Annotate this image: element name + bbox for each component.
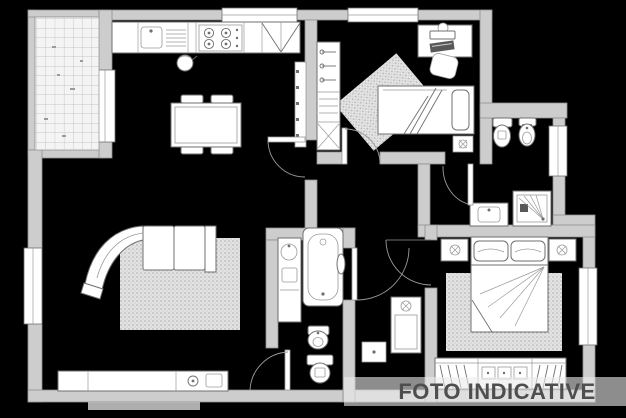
- balcony: [35, 17, 99, 150]
- watermark-text: FOTO INDICATIVE: [344, 377, 626, 406]
- double-bed: [471, 237, 548, 332]
- wall: [317, 152, 345, 164]
- washbasin: [470, 203, 508, 226]
- bathroom1-door: [443, 164, 473, 205]
- shower: [513, 191, 551, 226]
- tv-sideboard: [58, 371, 228, 391]
- nightstand-right: [549, 239, 576, 261]
- wall: [266, 240, 278, 348]
- bidet: [308, 326, 329, 349]
- wardrobe-with-hangers: [317, 42, 340, 150]
- toilet: [493, 118, 512, 147]
- wall: [99, 10, 112, 72]
- bathroom2-door-living: [250, 350, 290, 390]
- bedroom-2: [317, 23, 474, 152]
- wall: [418, 164, 430, 228]
- wall: [99, 140, 112, 158]
- pillow: [452, 90, 469, 130]
- corridor-cabinet: [391, 297, 421, 353]
- bathroom-window: [549, 126, 567, 176]
- wall: [28, 10, 106, 17]
- chair: [181, 95, 203, 103]
- floor-plan-drawing: [0, 0, 626, 418]
- wall: [425, 225, 437, 240]
- corridor: [362, 297, 421, 362]
- pillow: [511, 241, 545, 261]
- floor-plan-image: FOTO INDICATIVE: [0, 0, 626, 418]
- wall: [305, 20, 317, 140]
- single-bed: [378, 86, 474, 134]
- wall-step: [88, 402, 200, 410]
- wall: [480, 10, 492, 164]
- wall: [343, 228, 355, 248]
- bedroom-window: [348, 8, 418, 22]
- kitchen-radiator: [295, 62, 306, 147]
- kitchen-counter: [112, 22, 300, 53]
- wall: [480, 103, 567, 118]
- wall: [418, 225, 595, 237]
- bathroom2-door-corridor: [352, 248, 409, 300]
- washbasin-cabinet: [278, 238, 301, 322]
- pillow: [474, 241, 508, 261]
- desk-with-computer: [418, 23, 472, 57]
- wall: [28, 10, 35, 158]
- living-room-window: [24, 248, 42, 324]
- dining-table: [171, 95, 241, 154]
- wall: [305, 180, 317, 228]
- toilet: [307, 355, 333, 383]
- pouf: [453, 136, 473, 152]
- bathtub: [303, 228, 345, 306]
- corridor-radiator: [362, 342, 386, 362]
- balcony-tile-grid: [35, 17, 99, 150]
- master-bedroom-window: [579, 268, 597, 345]
- kettle: [177, 55, 197, 71]
- master-door: [386, 240, 431, 285]
- wall: [380, 152, 445, 164]
- bidet: [519, 118, 536, 146]
- nightstand-left: [441, 239, 468, 261]
- chair: [211, 95, 233, 103]
- kitchen-window: [222, 8, 297, 22]
